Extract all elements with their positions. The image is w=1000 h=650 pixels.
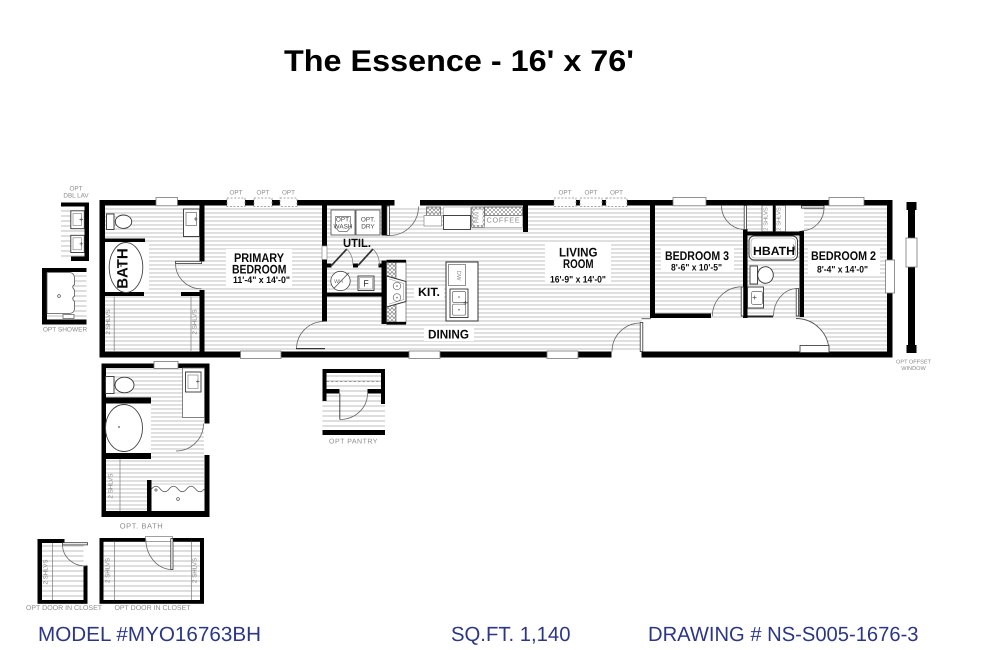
svg-text:COFFEE: COFFEE: [487, 216, 521, 225]
svg-text:UTIL.: UTIL.: [343, 236, 371, 250]
svg-text:OPT: OPT: [257, 190, 270, 197]
svg-text:2 SHLVS: 2 SHLVS: [108, 474, 115, 499]
svg-text:DRAWING # NS-S005-1676-3: DRAWING # NS-S005-1676-3: [648, 623, 919, 646]
svg-text:BEDROOM 2: BEDROOM 2: [811, 249, 876, 263]
svg-text:OPT.: OPT.: [336, 217, 350, 224]
svg-text:KIT.: KIT.: [418, 285, 440, 299]
svg-text:DBL LAV: DBL LAV: [63, 193, 89, 200]
svg-text:2 SHLVS: 2 SHLVS: [763, 207, 770, 231]
svg-text:ROOM: ROOM: [563, 257, 594, 271]
svg-text:2 SHLVS: 2 SHLVS: [105, 310, 112, 335]
svg-text:WASH: WASH: [334, 224, 353, 231]
svg-text:The Essence - 16' x 76': The Essence - 16' x 76': [284, 45, 634, 78]
svg-text:SQ.FT. 1,140: SQ.FT. 1,140: [451, 623, 571, 646]
svg-text:2 SHLVS: 2 SHLVS: [776, 207, 783, 231]
svg-text:HBATH: HBATH: [753, 244, 795, 258]
svg-text:OPT SHOWER: OPT SHOWER: [43, 327, 88, 334]
svg-text:OPT: OPT: [610, 190, 623, 197]
svg-text:OPT DOOR IN CLOSET: OPT DOOR IN CLOSET: [26, 605, 103, 612]
svg-text:OPT. BATH: OPT. BATH: [120, 522, 164, 531]
svg-text:OPT.: OPT.: [361, 217, 375, 224]
svg-text:8'-4" x 14'-0": 8'-4" x 14'-0": [817, 265, 868, 276]
svg-text:BEDROOM 3: BEDROOM 3: [665, 249, 729, 263]
svg-text:F: F: [363, 279, 369, 289]
svg-text:DRY: DRY: [361, 224, 375, 231]
svg-text:OPT DOOR IN CLOSET: OPT DOOR IN CLOSET: [114, 605, 191, 612]
svg-text:OPT: OPT: [585, 190, 598, 197]
svg-text:OPT PANTRY: OPT PANTRY: [329, 439, 378, 446]
svg-text:DINING: DINING: [428, 328, 469, 342]
svg-text:11'-4" x 14'-0": 11'-4" x 14'-0": [233, 275, 290, 286]
svg-text:2 SHLVS: 2 SHLVS: [192, 310, 199, 335]
svg-text:OPT: OPT: [559, 190, 572, 197]
svg-text:OPT OFFSET: OPT OFFSET: [896, 360, 932, 366]
svg-text:2 SHLVS: 2 SHLVS: [192, 558, 199, 583]
svg-text:2 SHLVS: 2 SHLVS: [105, 558, 112, 583]
svg-text:2 SHLVS: 2 SHLVS: [43, 560, 50, 585]
svg-text:8'-6" x 10'-5": 8'-6" x 10'-5": [671, 263, 722, 274]
svg-text:PAN: PAN: [475, 212, 481, 223]
svg-text:16'-9" x 14'-0": 16'-9" x 14'-0": [550, 275, 606, 286]
svg-text:WINDOW: WINDOW: [901, 366, 926, 372]
svg-text:OPT: OPT: [70, 186, 83, 193]
svg-text:DW: DW: [455, 271, 462, 281]
svg-text:OPT: OPT: [230, 190, 243, 197]
svg-text:BATH: BATH: [115, 248, 132, 289]
svg-text:OPT: OPT: [282, 190, 295, 197]
svg-text:MODEL #MYO16763BH: MODEL #MYO16763BH: [38, 623, 261, 646]
svg-text:WH: WH: [334, 279, 343, 285]
